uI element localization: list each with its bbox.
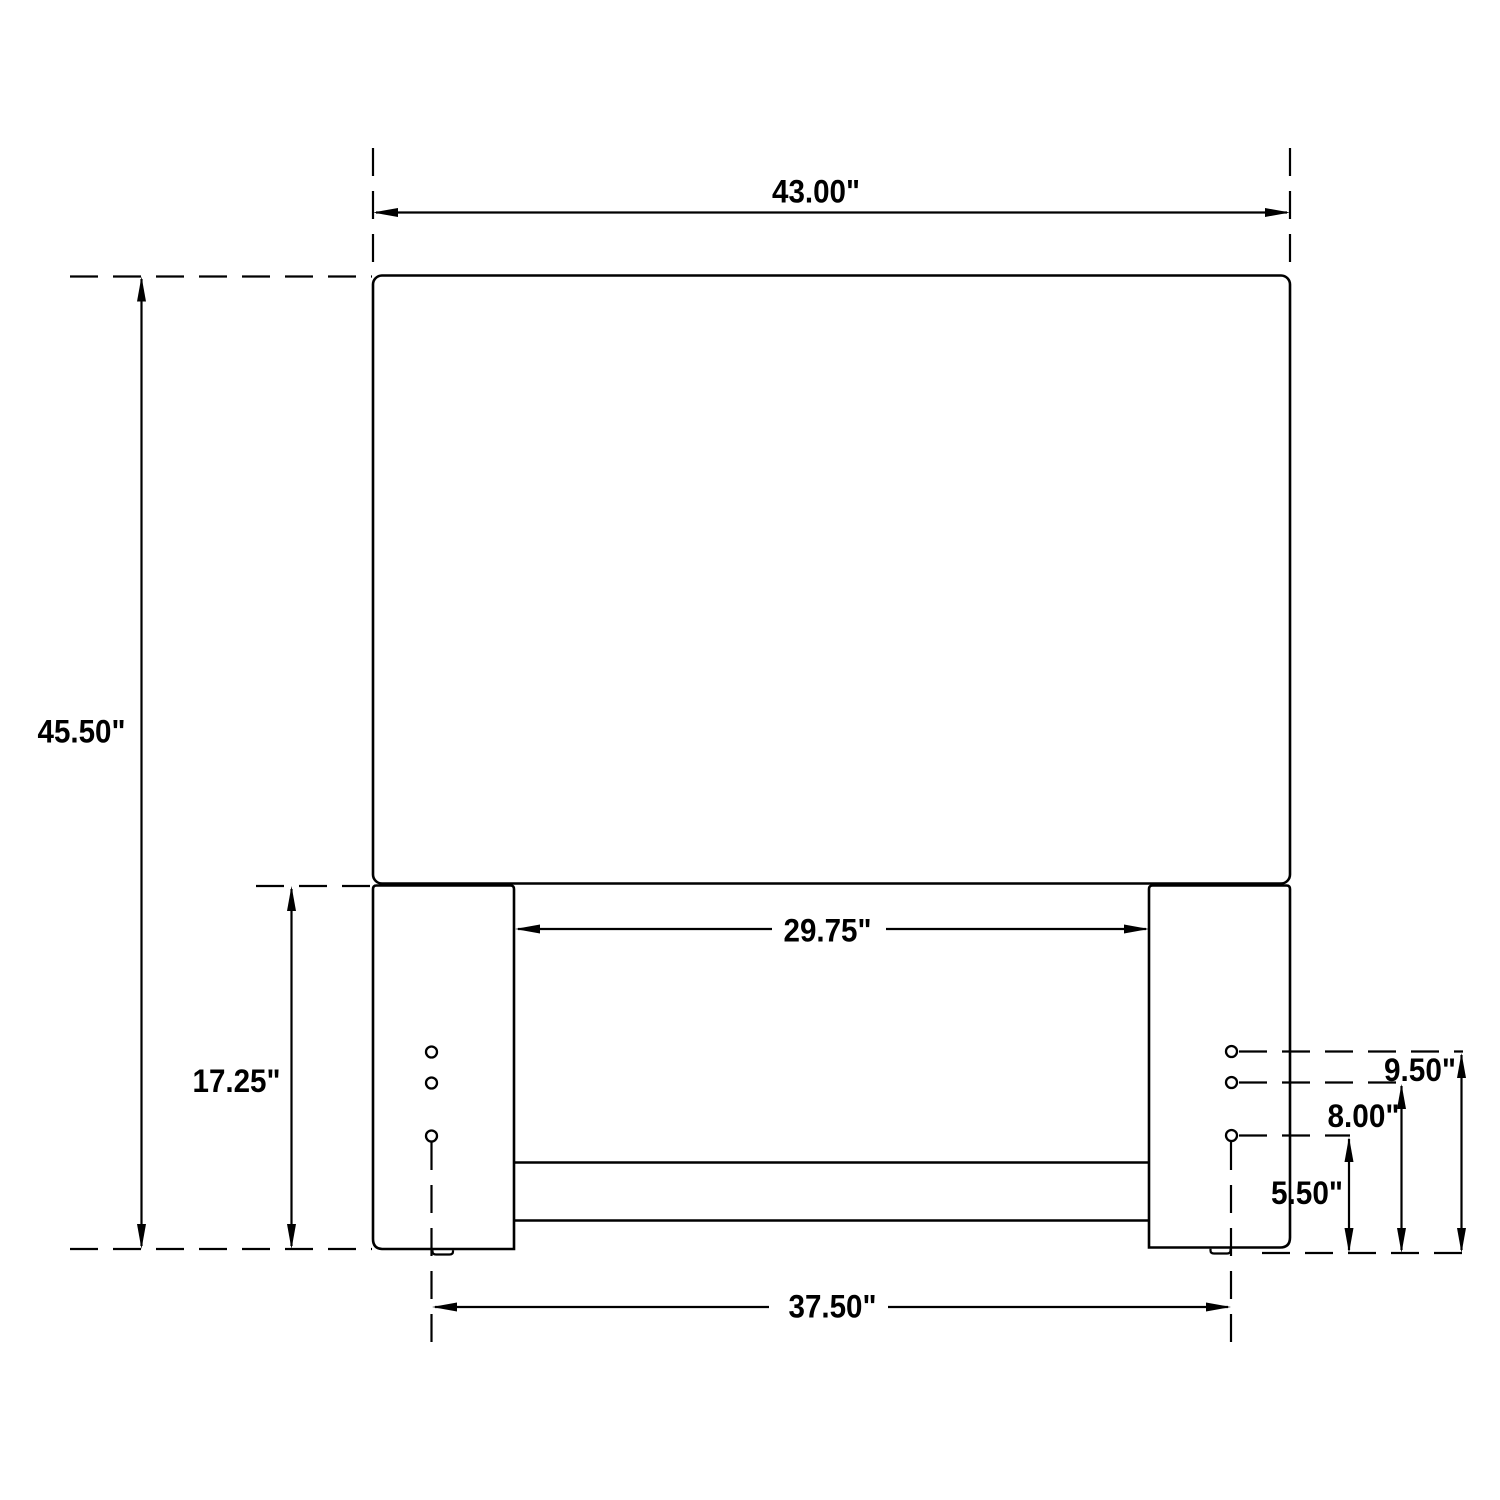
svg-text:8.00": 8.00" [1328, 1098, 1400, 1134]
svg-text:9.50": 9.50" [1384, 1052, 1456, 1088]
svg-text:5.50": 5.50" [1271, 1175, 1343, 1211]
svg-text:29.75": 29.75" [784, 913, 872, 949]
svg-text:17.25": 17.25" [193, 1063, 281, 1099]
svg-text:37.50": 37.50" [789, 1289, 877, 1325]
svg-text:43.00": 43.00" [772, 174, 860, 210]
svg-text:45.50": 45.50" [38, 714, 126, 750]
